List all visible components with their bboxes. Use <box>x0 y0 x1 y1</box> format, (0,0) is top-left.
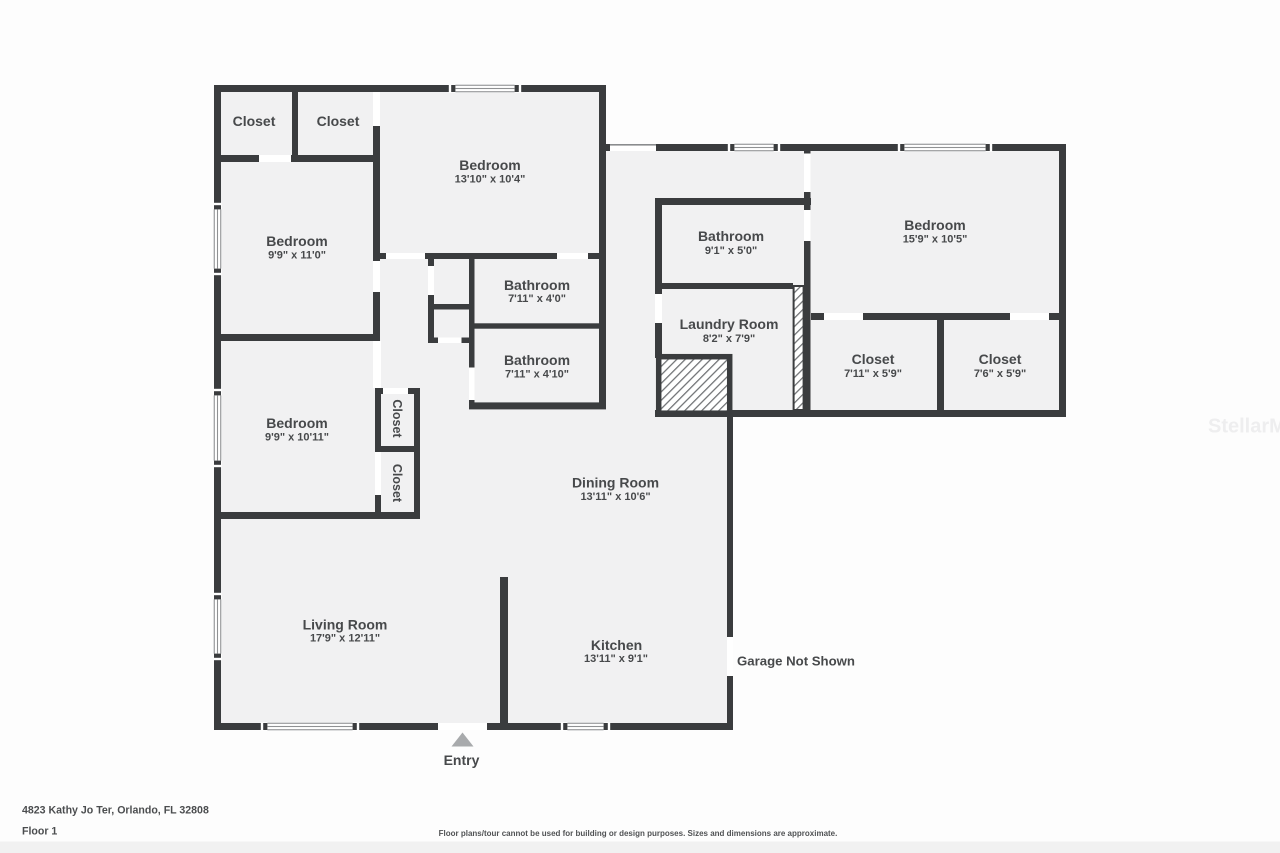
svg-text:13'11" x 10'6": 13'11" x 10'6" <box>580 491 650 503</box>
svg-text:9'9" x 11'0": 9'9" x 11'0" <box>268 250 326 262</box>
svg-text:Closet: Closet <box>852 351 895 367</box>
svg-text:Bedroom: Bedroom <box>266 233 327 249</box>
svg-text:7'11" x 4'10": 7'11" x 4'10" <box>505 369 569 381</box>
svg-text:Entry: Entry <box>444 752 480 768</box>
svg-text:Bedroom: Bedroom <box>459 157 520 173</box>
svg-text:13'11" x 9'1": 13'11" x 9'1" <box>584 653 648 665</box>
svg-text:Floor plans/tour cannot be use: Floor plans/tour cannot be used for buil… <box>439 829 838 838</box>
svg-text:7'11" x 4'0": 7'11" x 4'0" <box>508 293 566 305</box>
svg-text:StellarMLS: StellarMLS <box>1208 416 1280 438</box>
svg-text:Closet: Closet <box>233 113 276 129</box>
svg-text:7'11" x 5'9": 7'11" x 5'9" <box>844 368 902 380</box>
svg-text:Floor 1: Floor 1 <box>22 826 57 838</box>
svg-text:Kitchen: Kitchen <box>591 637 642 653</box>
svg-text:Bedroom: Bedroom <box>266 415 327 431</box>
svg-text:Laundry Room: Laundry Room <box>680 316 779 332</box>
svg-text:8'2" x 7'9": 8'2" x 7'9" <box>703 333 755 345</box>
svg-text:Bathroom: Bathroom <box>504 277 570 293</box>
svg-text:17'9" x 12'11": 17'9" x 12'11" <box>310 633 380 645</box>
svg-text:Dining Room: Dining Room <box>572 475 659 491</box>
svg-text:Closet: Closet <box>390 399 404 438</box>
svg-text:Living Room: Living Room <box>303 617 388 633</box>
svg-text:Closet: Closet <box>979 351 1022 367</box>
svg-text:13'10" x 10'4": 13'10" x 10'4" <box>455 174 526 186</box>
svg-text:Closet: Closet <box>317 113 360 129</box>
svg-text:4823 Kathy Jo Ter, Orlando, FL: 4823 Kathy Jo Ter, Orlando, FL 32808 <box>22 805 209 817</box>
svg-text:Bathroom: Bathroom <box>504 352 570 368</box>
svg-text:Garage Not Shown: Garage Not Shown <box>737 654 855 669</box>
svg-text:9'9" x 10'11": 9'9" x 10'11" <box>265 432 329 444</box>
svg-text:Bathroom: Bathroom <box>698 228 764 244</box>
svg-text:15'9" x 10'5": 15'9" x 10'5" <box>903 234 968 246</box>
svg-text:Bedroom: Bedroom <box>904 217 965 233</box>
svg-text:Closet: Closet <box>390 464 404 503</box>
svg-text:9'1" x 5'0": 9'1" x 5'0" <box>705 245 757 257</box>
svg-text:7'6" x 5'9": 7'6" x 5'9" <box>974 368 1026 380</box>
